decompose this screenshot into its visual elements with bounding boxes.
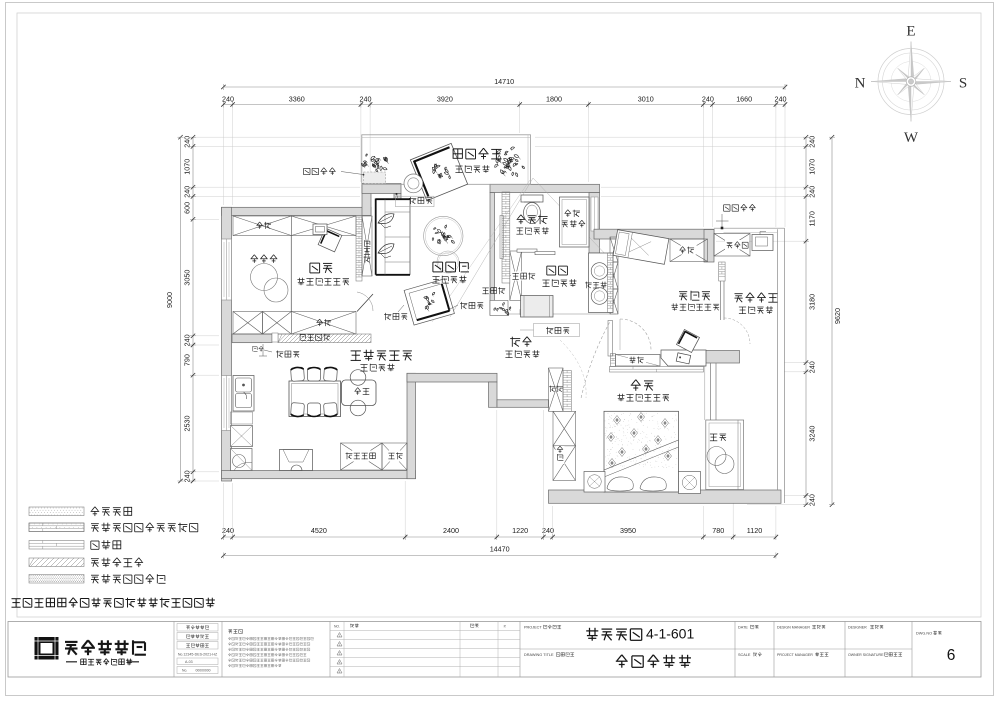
svg-text:3360: 3360: [289, 95, 305, 104]
svg-text:DWG.NO: DWG.NO: [916, 632, 932, 636]
svg-text:1120: 1120: [747, 526, 762, 535]
svg-text:240: 240: [183, 186, 192, 198]
svg-text:6: 6: [947, 647, 956, 664]
svg-text:1660: 1660: [736, 95, 752, 104]
svg-text:PROJECT MANAGER: PROJECT MANAGER: [777, 653, 813, 657]
svg-text:240: 240: [808, 136, 817, 148]
svg-text:9620: 9620: [833, 308, 842, 324]
svg-text:240: 240: [183, 334, 192, 346]
svg-text:3920: 3920: [437, 95, 453, 104]
svg-text:240: 240: [222, 526, 234, 535]
svg-text:4520: 4520: [311, 526, 327, 535]
svg-text:DESIGNER: DESIGNER: [848, 626, 867, 630]
svg-text:240: 240: [183, 470, 192, 482]
svg-text:No.: No.: [182, 669, 187, 673]
svg-text:SCALE: SCALE: [738, 653, 751, 657]
svg-text:240: 240: [542, 526, 554, 535]
svg-text:S: S: [959, 76, 967, 92]
svg-text:3180: 3180: [808, 294, 817, 310]
svg-text:1170: 1170: [808, 211, 817, 226]
svg-text:3240: 3240: [808, 426, 817, 442]
svg-text:E: E: [906, 24, 915, 40]
svg-text:790: 790: [183, 354, 192, 366]
svg-text:3950: 3950: [620, 526, 636, 535]
svg-text:P.: P.: [504, 625, 507, 629]
svg-text:3050: 3050: [183, 270, 192, 286]
svg-text:N: N: [855, 76, 866, 92]
svg-text:240: 240: [775, 95, 787, 104]
svg-text:240: 240: [808, 494, 817, 506]
svg-text:PROJECT: PROJECT: [524, 626, 542, 630]
svg-text:1070: 1070: [808, 159, 817, 175]
svg-text:3010: 3010: [638, 95, 654, 104]
svg-text:240: 240: [360, 95, 372, 104]
svg-text:240: 240: [808, 361, 817, 373]
svg-text:240: 240: [702, 95, 714, 104]
svg-text:2530: 2530: [183, 416, 192, 432]
svg-text:240: 240: [222, 95, 234, 104]
svg-text:OWNER SIGNATURE: OWNER SIGNATURE: [848, 653, 884, 657]
svg-text:DATE: DATE: [738, 626, 748, 630]
svg-text:W: W: [904, 130, 919, 146]
svg-text:9000: 9000: [165, 292, 174, 308]
svg-text:DRAWING TITLE: DRAWING TITLE: [524, 653, 554, 657]
svg-text:4-1-601: 4-1-601: [646, 626, 694, 642]
svg-text:14710: 14710: [494, 77, 514, 86]
svg-text:1070: 1070: [183, 159, 192, 175]
svg-text:NO.: NO.: [334, 625, 340, 629]
svg-text:1800: 1800: [546, 95, 562, 104]
svg-text:600: 600: [183, 202, 192, 214]
svg-text:A-03: A-03: [185, 660, 193, 664]
svg-text:240: 240: [183, 136, 192, 148]
svg-text:780: 780: [712, 526, 724, 535]
svg-text:00000000: 00000000: [195, 669, 210, 673]
svg-text:240: 240: [808, 186, 817, 198]
svg-text:DESIGN MANAGER: DESIGN MANAGER: [777, 626, 810, 630]
svg-text:14470: 14470: [490, 545, 510, 554]
svg-text:1220: 1220: [512, 526, 528, 535]
svg-text:2400: 2400: [443, 526, 459, 535]
svg-text:No.12345-DES-2021-HZ: No.12345-DES-2021-HZ: [178, 653, 218, 657]
